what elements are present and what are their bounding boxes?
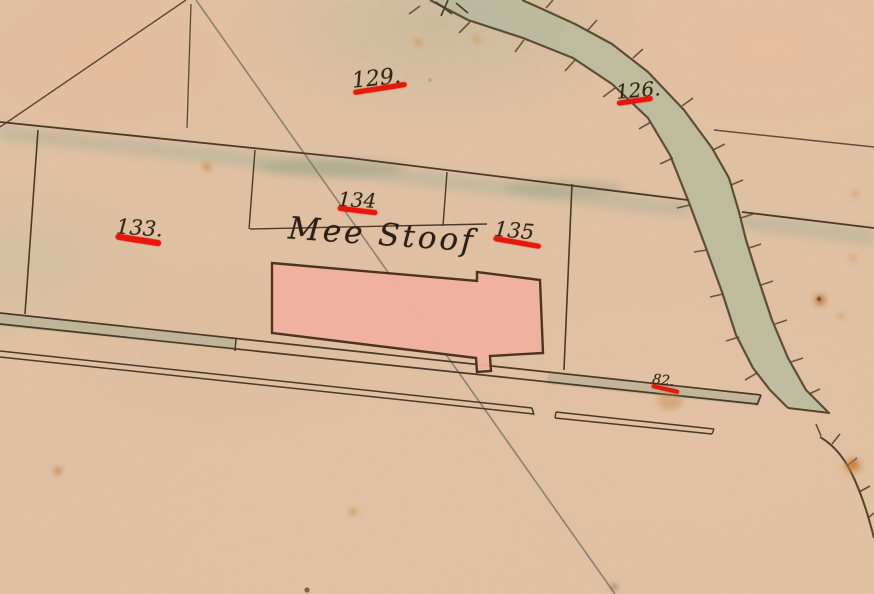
parcel-label-126: 126. xyxy=(615,78,661,104)
map-linework xyxy=(0,0,874,594)
parcel-label-133: 133. xyxy=(115,216,163,244)
parcel-label-135: 135 xyxy=(493,219,543,247)
historical-map-canvas: 129. 126. 133. 134 135 82. Mee Stoof xyxy=(0,0,874,594)
parcel-label-82: 82. xyxy=(651,373,681,393)
parcel-label-134: 134 xyxy=(337,189,378,214)
